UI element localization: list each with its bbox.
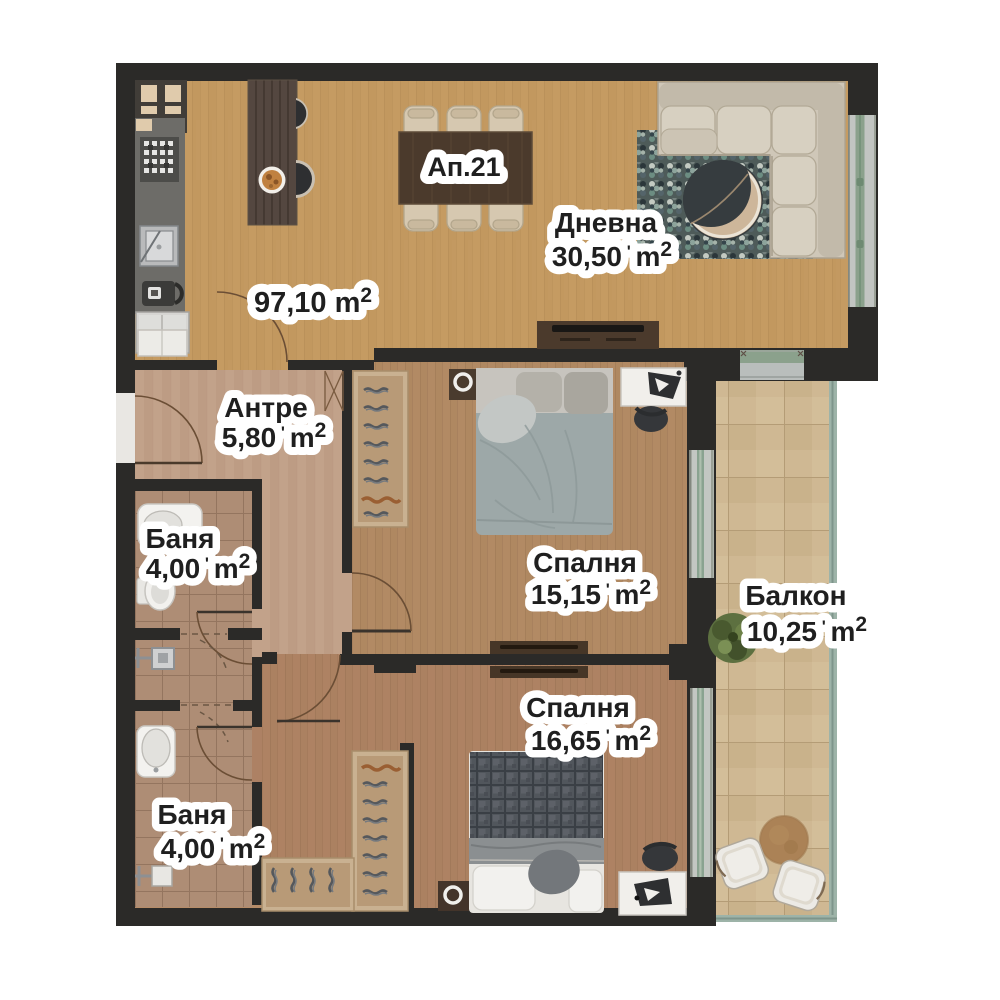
svg-text:30,50 ' m2: 30,50 ' m2 <box>552 238 672 272</box>
svg-text:4,00 ' m2: 4,00 ' m2 <box>146 550 251 584</box>
svg-text:Спалня: Спалня <box>533 547 637 578</box>
svg-text:Баня: Баня <box>146 523 215 554</box>
svg-text:5,80 ' m2: 5,80 ' m2 <box>222 419 327 453</box>
svg-text:10,25 ' m2: 10,25 ' m2 <box>747 613 867 647</box>
svg-text:97,10 m2: 97,10 m2 <box>254 284 372 319</box>
svg-text:16,65 ' m2: 16,65 ' m2 <box>531 722 651 756</box>
svg-text:Ап.21: Ап.21 <box>427 152 500 182</box>
svg-text:Антре: Антре <box>224 392 308 423</box>
svg-text:Дневна: Дневна <box>555 207 658 238</box>
svg-text:Балкон: Балкон <box>745 580 846 611</box>
svg-text:Спалня: Спалня <box>526 692 630 723</box>
svg-text:Баня: Баня <box>158 799 227 830</box>
svg-text:4,00 ' m2: 4,00 ' m2 <box>161 830 266 864</box>
svg-text:15,15 ' m2: 15,15 ' m2 <box>531 576 651 610</box>
